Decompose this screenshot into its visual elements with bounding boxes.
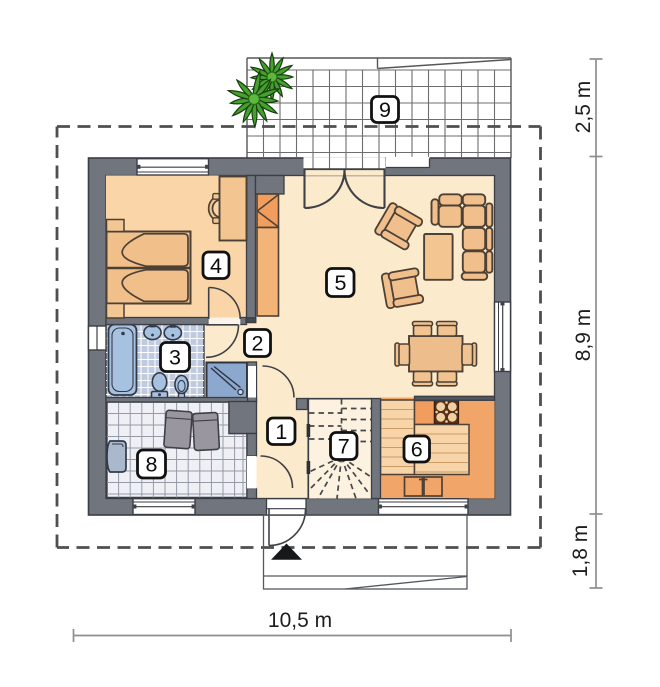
svg-text:7: 7 <box>338 435 350 459</box>
svg-text:3: 3 <box>169 346 181 370</box>
svg-text:1,8 m: 1,8 m <box>569 525 592 578</box>
svg-text:9: 9 <box>379 98 391 122</box>
svg-text:6: 6 <box>411 438 423 462</box>
svg-text:4: 4 <box>210 254 222 278</box>
svg-text:2: 2 <box>252 332 264 356</box>
svg-text:2,5 m: 2,5 m <box>572 81 595 134</box>
svg-text:8: 8 <box>146 453 158 477</box>
svg-text:10,5 m: 10,5 m <box>268 609 332 632</box>
svg-text:8,9 m: 8,9 m <box>572 309 595 362</box>
svg-text:1: 1 <box>275 420 287 444</box>
svg-text:5: 5 <box>335 271 347 295</box>
